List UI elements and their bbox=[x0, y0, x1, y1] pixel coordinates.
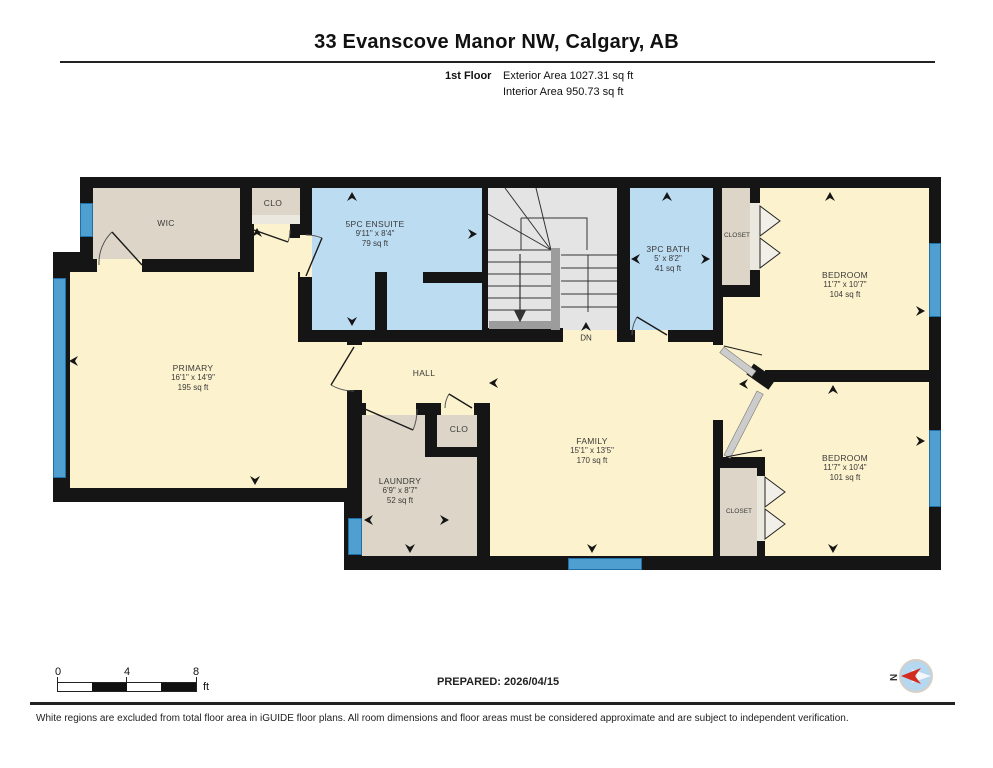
window-laundry bbox=[348, 518, 362, 555]
window-bedroom2 bbox=[929, 430, 941, 507]
scale-bar-track bbox=[57, 682, 197, 692]
clo-mid-door-opening bbox=[441, 403, 474, 415]
label-clo-top: CLO bbox=[264, 198, 282, 208]
ensuite-wc-wall-h bbox=[423, 272, 482, 283]
label-bath: 3PC BATH 5' x 8'2" 41 sq ft bbox=[646, 244, 689, 274]
primary-door-opening bbox=[347, 345, 362, 390]
doorway-stub-lower bbox=[713, 420, 723, 460]
floorplan-canvas: N WIC CLO 5PC ENSUITE 9'11" x 8'4" 79 sq… bbox=[0, 0, 993, 768]
room-ensuite bbox=[312, 188, 482, 330]
room-primary-east bbox=[298, 342, 347, 488]
label-family: FAMILY 15'1" x 13'5" 170 sq ft bbox=[570, 436, 614, 466]
stair-bottom-wall bbox=[488, 328, 563, 342]
closet1-opening-strip bbox=[750, 203, 760, 270]
scale-unit: ft bbox=[203, 681, 209, 693]
compass: N bbox=[889, 660, 932, 692]
stair-dn-label: DN bbox=[580, 334, 592, 343]
window-bedroom1 bbox=[929, 243, 941, 317]
closet2-wall-bottom bbox=[757, 541, 765, 556]
scale-end-tick bbox=[57, 677, 58, 682]
compass-needle-north bbox=[901, 668, 921, 684]
prepared-date: PREPARED: 2026/04/15 bbox=[437, 676, 559, 688]
scale-end-tick bbox=[196, 677, 197, 682]
label-bedroom1: BEDROOM 11'7" x 10'7" 104 sq ft bbox=[822, 270, 868, 300]
clo-door-stub-left bbox=[240, 224, 254, 238]
window-family bbox=[568, 558, 642, 570]
disclaimer-text: White regions are excluded from total fl… bbox=[36, 713, 849, 724]
label-laundry: LAUNDRY 6'9" x 8'7" 52 sq ft bbox=[379, 476, 422, 506]
label-ensuite: 5PC ENSUITE 9'11" x 8'4" 79 sq ft bbox=[345, 219, 404, 249]
closet1-wall-bottom bbox=[750, 270, 760, 285]
compass-n-label: N bbox=[889, 674, 900, 681]
laundry-door-opening bbox=[366, 403, 416, 415]
window-primary bbox=[53, 278, 66, 478]
clo-mid-wall-h bbox=[425, 447, 480, 457]
closet2-opening-strip bbox=[757, 476, 765, 541]
scale-tick-4: 4 bbox=[124, 666, 130, 678]
label-closet1: CLOSET bbox=[724, 231, 750, 241]
closet1-wall-top bbox=[750, 188, 760, 203]
label-hall: HALL bbox=[413, 368, 435, 378]
label-wic: WIC bbox=[157, 218, 174, 228]
compass-circle bbox=[900, 660, 932, 692]
bath-door-opening bbox=[635, 330, 668, 342]
clo-top-shelf bbox=[252, 215, 300, 224]
label-closet2: CLOSET bbox=[726, 507, 752, 517]
label-primary: PRIMARY 16'1" x 14'9" 195 sq ft bbox=[171, 363, 215, 393]
wic-door-opening bbox=[97, 259, 142, 272]
closet2-wall-top bbox=[757, 468, 765, 476]
label-bedroom2: BEDROOM 11'7" x 10'4" 101 sq ft bbox=[822, 453, 868, 483]
scale-bar-segment bbox=[161, 683, 196, 691]
scale-mid-tick bbox=[126, 677, 127, 682]
compass-needle-south bbox=[911, 669, 931, 683]
floorplan-page: { "header": { "title": "33 Evanscove Man… bbox=[0, 0, 993, 768]
room-laundry-east bbox=[425, 457, 477, 556]
stairwell bbox=[488, 188, 617, 330]
window-wic bbox=[80, 203, 93, 237]
scale-bar-segment bbox=[92, 683, 127, 691]
scale-tick-0: 0 bbox=[55, 666, 61, 678]
room-bedroom1-entry bbox=[723, 297, 760, 345]
ensuite-wc-wall-v bbox=[375, 272, 387, 330]
label-clo-mid: CLO bbox=[450, 424, 468, 434]
ensuite-door-opening bbox=[300, 235, 312, 277]
footer-divider bbox=[30, 702, 955, 705]
